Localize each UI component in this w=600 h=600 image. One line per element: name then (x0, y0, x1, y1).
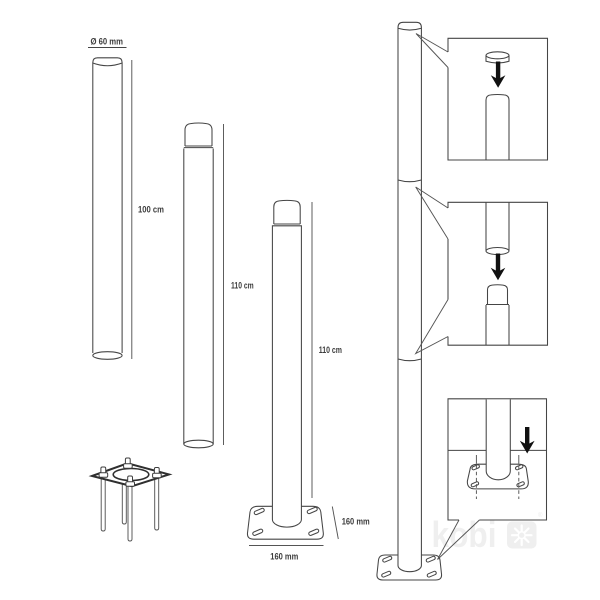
svg-text:110 cm: 110 cm (319, 345, 342, 356)
svg-text:Ø 60 mm: Ø 60 mm (91, 36, 124, 47)
svg-text:110 cm: 110 cm (231, 280, 254, 291)
svg-text:160 mm: 160 mm (270, 551, 298, 562)
svg-text:160 mm: 160 mm (342, 516, 370, 527)
svg-text:100 cm: 100 cm (138, 205, 164, 216)
svg-text:®: ® (538, 512, 543, 519)
